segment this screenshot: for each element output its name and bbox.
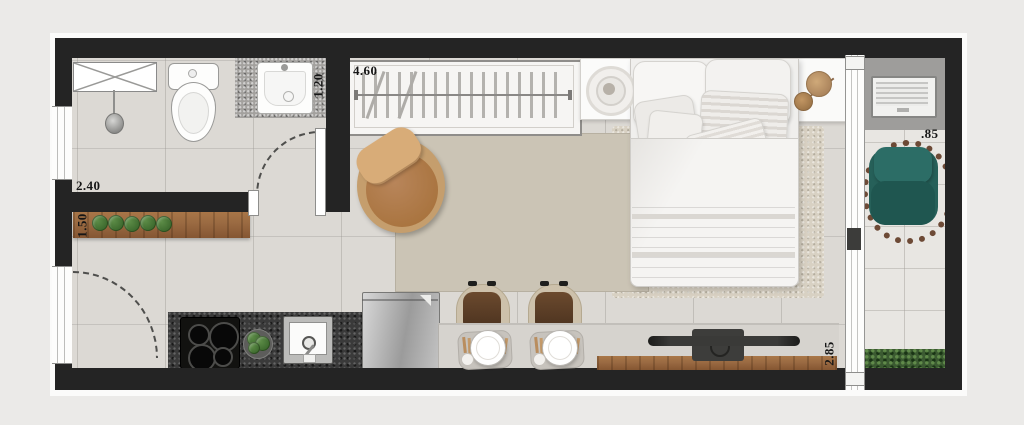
closet-rail-end [568,90,572,100]
wall-top [55,38,962,58]
closet-rail-end [354,90,358,100]
wall-bathroom-divider [326,38,350,212]
chair-knob [540,281,549,286]
dim-balcony-width-label: .85 [921,126,938,141]
decor-wood-disc [806,71,832,97]
glass-door-junction [847,228,861,250]
entry-door-opening [52,266,72,364]
napkin [533,353,546,366]
dim-living-length-label: 2.85 [822,332,837,376]
napkin [461,353,474,366]
duvet-band [632,252,795,257]
plate-inner-ring [548,336,572,360]
wall-bathroom-bottom [72,192,250,212]
herb-plant [124,216,140,232]
dim-closet-width-label: 4.60 [353,63,377,78]
balcony-chair-back-cushion [874,147,932,183]
sink-drain [283,91,294,102]
glass-door-tie [845,56,865,70]
chair-knob [559,281,568,286]
duvet-band [632,214,795,219]
bathroom-door-leaf [315,128,326,216]
tv [648,336,800,346]
refrigerator-hinge-mark [420,295,431,306]
plate-inner-ring [476,336,500,360]
bathroom-door-post [248,190,259,216]
kitchen-faucet-base [303,354,316,363]
balcony-chair-seat-cushion [871,181,935,225]
duvet-stitching [632,198,795,283]
glass-door-tie [845,372,865,386]
dining-chair-cushion [463,292,501,326]
shower-glass-x-icon [74,63,156,91]
dim-shelf-length-label: 1.50 [75,204,90,248]
decor-wood-disc [794,92,813,111]
herb-plant [140,215,156,231]
dining-chair-cushion [535,292,573,326]
cooktop-burner [213,347,233,367]
herb-plant [108,215,124,231]
shower-head [105,113,124,134]
toilet-flush-button [188,69,197,78]
bathroom-faucet [281,64,288,71]
chair-knob [487,281,496,286]
chair-knob [468,281,477,286]
floor-plan: 2.40 1.20 4.60 1.50 .85 2.85 [0,0,1024,425]
wall-bathroom-corner [326,192,350,212]
ac-unit-handle [897,108,909,112]
closet-rail [356,94,570,96]
shower-enclosure [73,62,157,92]
cooktop-burner [188,324,210,346]
herb-plant [92,215,108,231]
balcony-glass-door [845,55,865,390]
herb-plant [156,216,172,232]
ac-unit-louvers [876,82,928,106]
bathroom-window [52,106,72,180]
counter-plant [248,342,260,354]
wall-right [945,38,962,390]
dim-bathroom-width-label: 2.40 [76,178,100,193]
dim-vanity-depth-label: 1.20 [311,64,326,108]
decor-tray-center [603,83,615,95]
